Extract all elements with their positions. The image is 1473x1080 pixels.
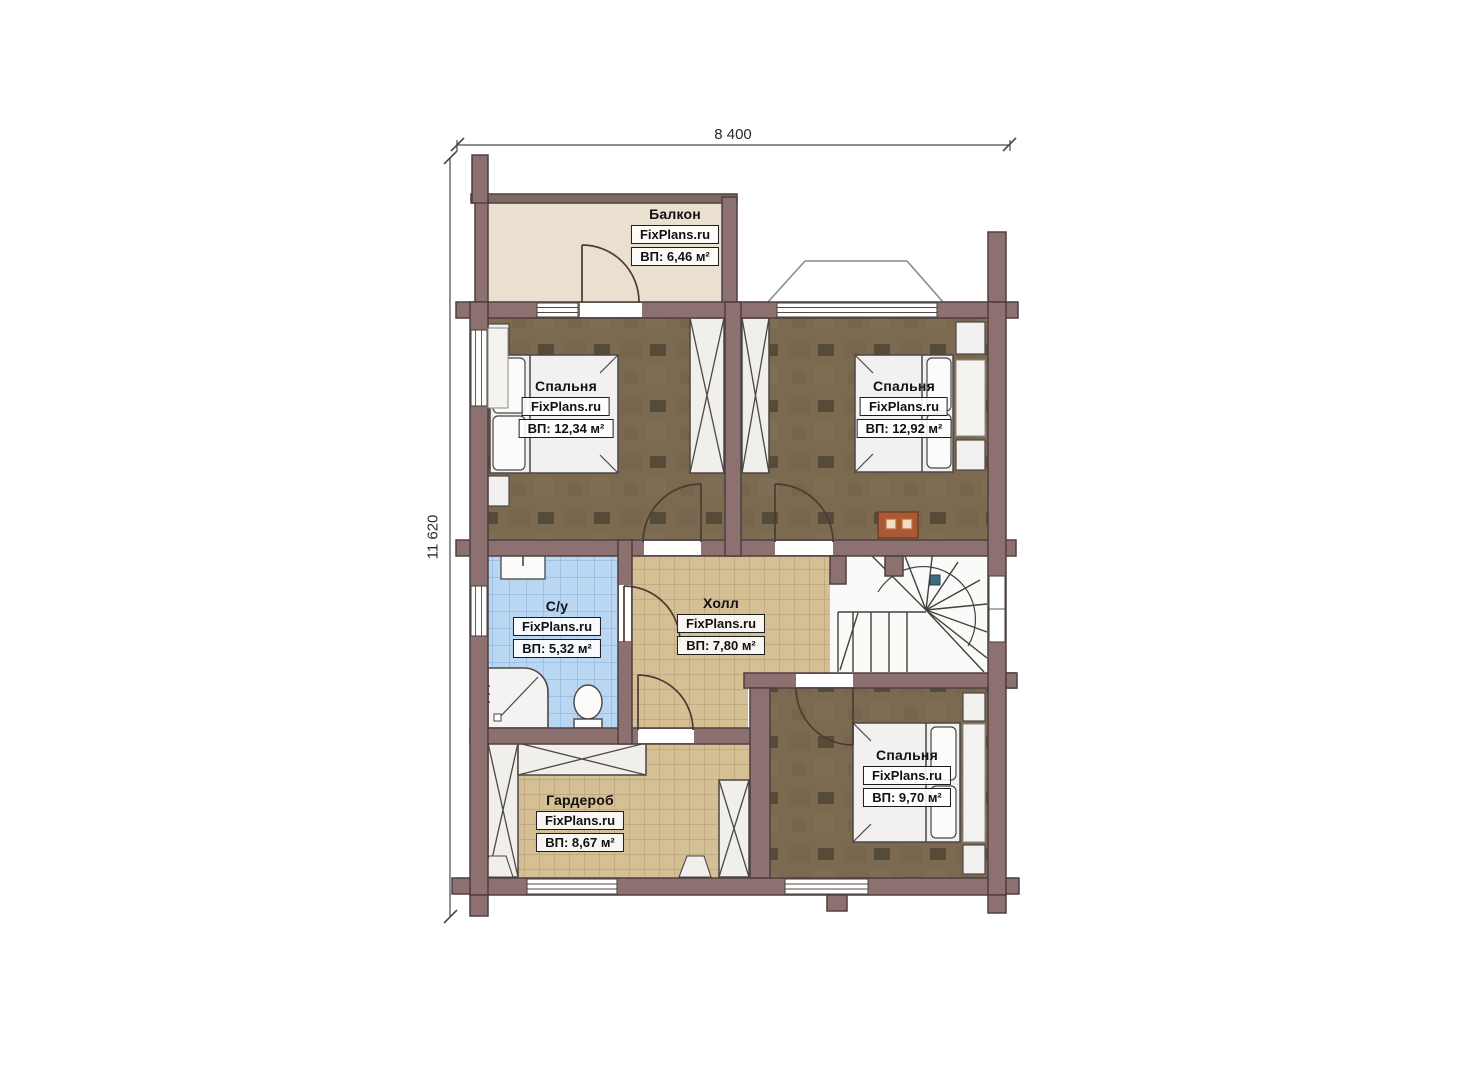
log-end	[470, 895, 488, 916]
floor-plan-drawing	[0, 0, 1473, 1080]
balcony-left-wall	[475, 197, 488, 303]
window	[537, 303, 578, 317]
balcony-right-wall	[722, 197, 737, 303]
wall-niche	[956, 360, 985, 436]
window	[777, 303, 937, 317]
floor-plan-canvas: 8 400 11 620 Балкон FixPlans.ru ВП: 6,46…	[0, 0, 1473, 1080]
dimension-height: 11 620	[425, 515, 442, 560]
window	[527, 879, 617, 894]
wardrobe-cabinet-top	[518, 743, 646, 775]
dimension-width: 8 400	[714, 126, 752, 143]
nightstand	[963, 693, 985, 721]
window	[471, 586, 487, 636]
post	[472, 155, 488, 203]
bedroom-divider-wall	[725, 302, 741, 556]
shower	[486, 668, 548, 728]
closet-left	[690, 318, 724, 473]
closet-right	[742, 318, 769, 473]
wall-niche	[963, 724, 985, 842]
log-end	[452, 878, 470, 894]
bay-roof-outline	[768, 261, 943, 302]
log-end	[827, 895, 847, 911]
wall-niche	[488, 328, 508, 408]
bed-top-right	[855, 355, 953, 472]
log-end	[1006, 878, 1019, 894]
bed-bottom	[853, 723, 960, 842]
nightstand	[963, 845, 985, 874]
hall-stub-wall	[885, 556, 903, 576]
stairs-bottom-wall	[744, 673, 1016, 688]
wardrobe-cabinet-right	[719, 780, 749, 877]
bathroom-right-wall	[618, 540, 632, 744]
toilet	[574, 685, 602, 728]
log-end	[1006, 673, 1017, 688]
hall-stairs-wall	[830, 556, 846, 584]
bed-top-left	[490, 355, 618, 473]
balcony-top-wall	[471, 194, 737, 203]
wardrobe-right-wall	[750, 688, 770, 878]
nightstand	[956, 322, 985, 354]
nightstand	[488, 476, 509, 506]
post	[988, 232, 1006, 302]
window	[471, 330, 487, 406]
log-end	[988, 895, 1006, 913]
balcony-floor	[486, 203, 724, 303]
nightstand	[956, 440, 985, 470]
window	[785, 879, 868, 894]
stair-walkline-marker	[930, 575, 940, 585]
fireplace	[878, 512, 918, 538]
